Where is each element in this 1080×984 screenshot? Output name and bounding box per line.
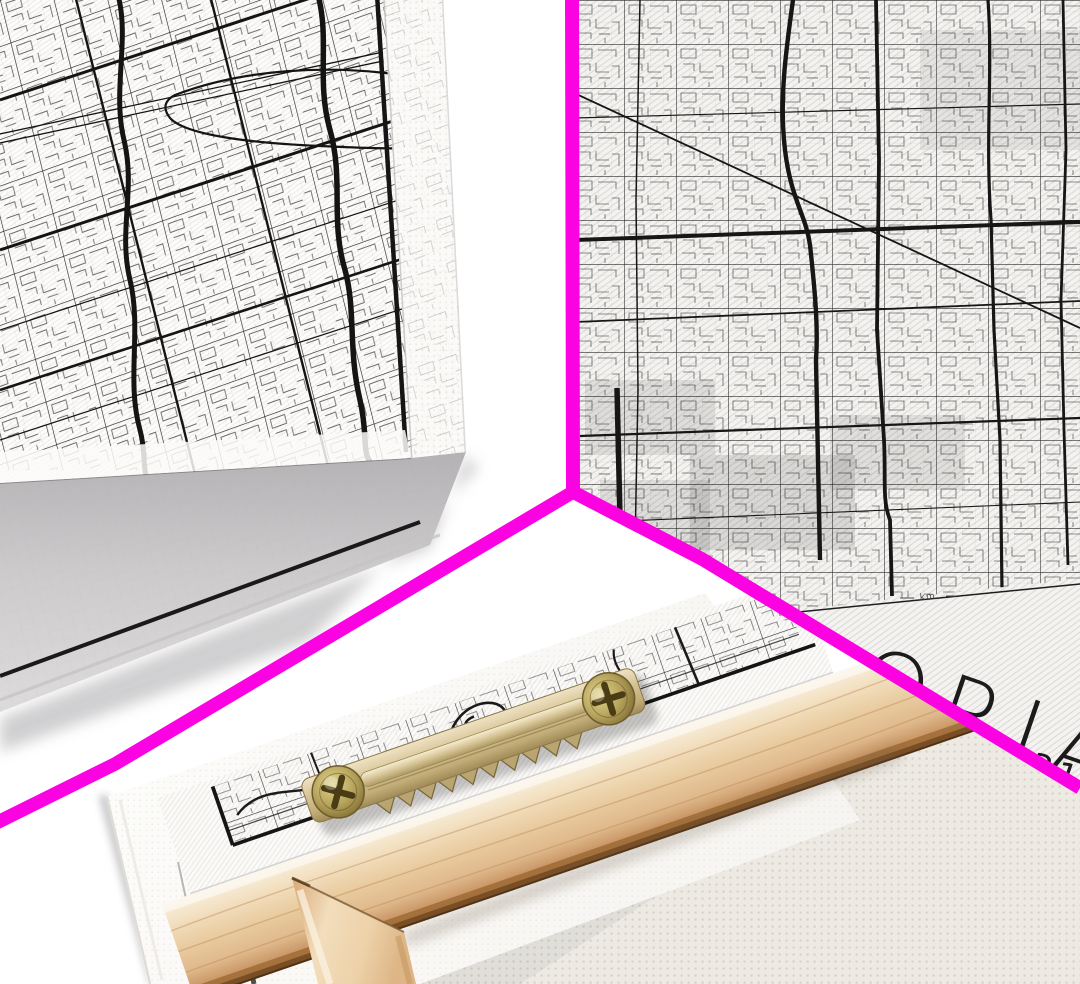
divider-vertical: [572, 0, 573, 492]
divider-junction: [566, 485, 580, 499]
product-photo-collage: km ORIA 231: [0, 0, 1080, 984]
map-scale-label: km: [919, 592, 936, 603]
collage-svg: km ORIA 231: [0, 0, 1080, 984]
hanger-screw-left: [312, 765, 365, 818]
